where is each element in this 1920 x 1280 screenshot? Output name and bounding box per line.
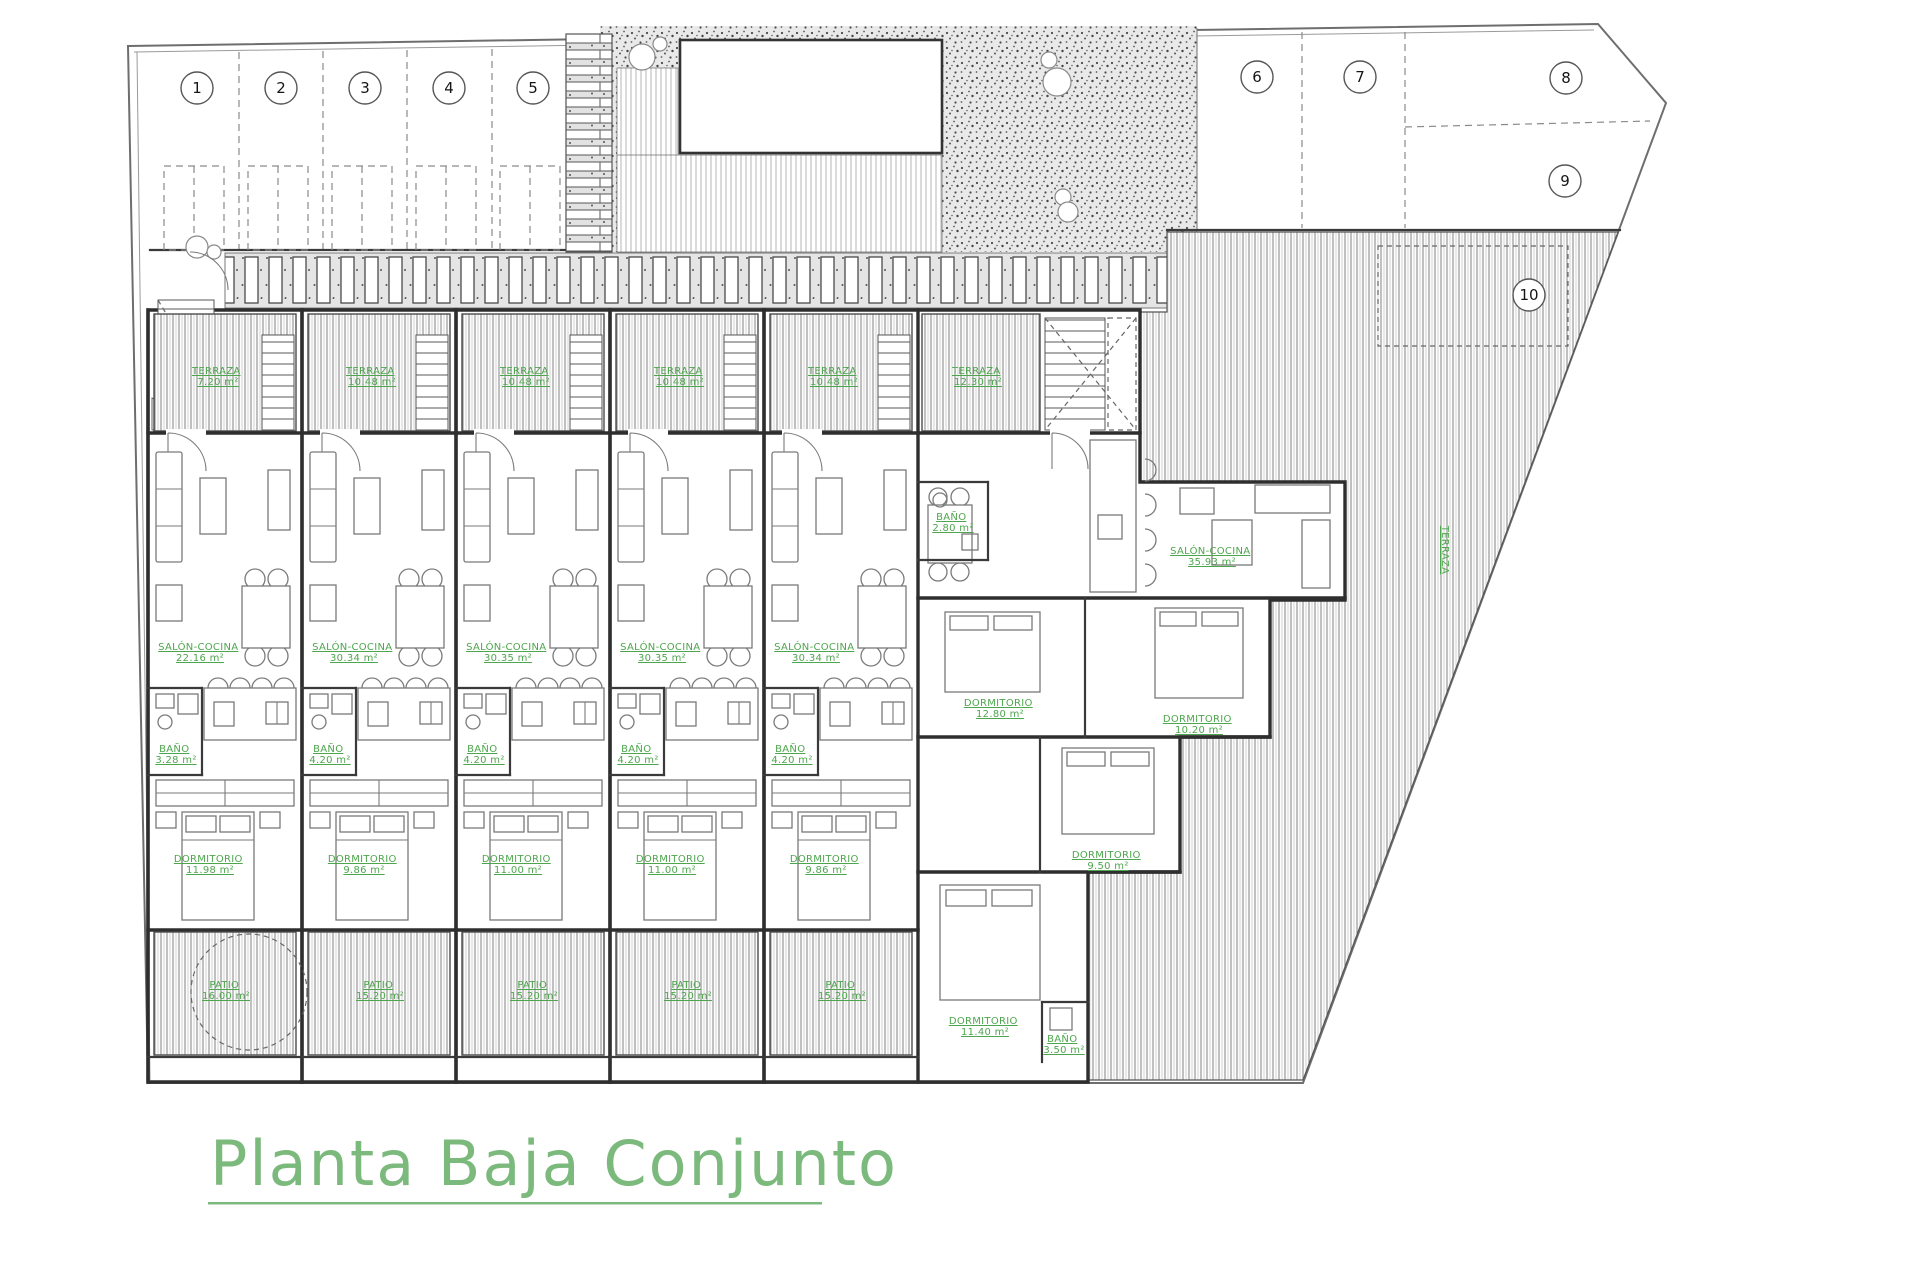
unit-4: TERRAZA 10.48 m² S — [610, 310, 764, 1082]
tv-sideboard — [576, 470, 598, 530]
entry-steps — [566, 34, 612, 252]
corner-bed-4 — [940, 885, 1040, 1000]
armchair — [156, 585, 182, 621]
bathroom: BAÑO 4.20 m² — [302, 688, 356, 775]
spot-number: 10 — [1519, 286, 1538, 304]
toilet — [312, 715, 326, 729]
tv-sideboard — [884, 470, 906, 530]
salon-label: SALÓN-COCINA 22.16 m² — [158, 640, 242, 664]
spot-number: 7 — [1355, 68, 1365, 86]
closet — [464, 780, 602, 806]
armchair — [464, 585, 490, 621]
toilet — [466, 715, 480, 729]
bano-label: BAÑO 4.20 m² — [771, 742, 812, 766]
spot-number: 9 — [1560, 172, 1570, 190]
spot-number: 5 — [528, 79, 538, 97]
shower — [178, 694, 198, 714]
nightstand — [876, 812, 896, 828]
sink — [310, 694, 328, 708]
sofa — [618, 452, 644, 562]
nightstand — [156, 812, 176, 828]
spot-number: 8 — [1561, 69, 1571, 87]
sofa — [310, 452, 336, 562]
parking-spot-8: 8 — [1550, 62, 1582, 94]
terrace-stair — [416, 335, 448, 431]
toilet — [774, 715, 788, 729]
armchair — [618, 585, 644, 621]
terrace-stair — [724, 335, 756, 431]
nightstand — [568, 812, 588, 828]
bano-label: BAÑO 4.20 m² — [309, 742, 350, 766]
corner-door-arc — [1052, 433, 1088, 469]
kitchen-counter — [512, 678, 604, 740]
bano-label: BAÑO 3.28 m² — [155, 742, 196, 766]
title-underline — [208, 1202, 822, 1205]
toilet — [620, 715, 634, 729]
nightstand — [310, 812, 330, 828]
coffee-table — [662, 478, 688, 534]
corner-bano1-label: BAÑO 2.80 m² — [932, 510, 973, 534]
tv-sideboard — [730, 470, 752, 530]
kitchen-counter — [820, 678, 912, 740]
corner-bath-2: BAÑO 3.50 m² — [1042, 1002, 1088, 1062]
corner-stair — [1045, 318, 1105, 430]
unit-3: TERRAZA 10.48 m² S — [456, 310, 610, 1082]
bano-label: BAÑO 4.20 m² — [463, 742, 504, 766]
floor-plan-page: 1 2 3 4 5 6 7 8 9 — [0, 0, 1920, 1280]
parking-spot-5: 5 — [517, 72, 549, 104]
parking-spot-2: 2 — [265, 72, 297, 104]
dining-table — [550, 569, 598, 666]
corner-sofa — [1180, 485, 1330, 588]
corner-dorm3-label: DORMITORIO 9.50 m² — [1072, 850, 1144, 872]
salon-label: SALÓN-COCINA 30.34 m² — [774, 640, 858, 664]
bathroom: BAÑO 4.20 m² — [456, 688, 510, 775]
bathroom: BAÑO 4.20 m² — [610, 688, 664, 775]
sink — [618, 694, 636, 708]
corner-bed-2 — [1155, 608, 1243, 698]
corner-bed-3 — [1062, 748, 1154, 834]
shower — [486, 694, 506, 714]
sofa — [464, 452, 490, 562]
closet — [618, 780, 756, 806]
spot-number: 3 — [360, 79, 370, 97]
dining-table — [242, 569, 290, 666]
terraza-label: TERRAZA 10.48 m² — [807, 366, 860, 388]
tv-sideboard — [422, 470, 444, 530]
armchair — [772, 585, 798, 621]
corner-dorm4-label: DORMITORIO 11.40 m² — [949, 1016, 1021, 1038]
parking-spot-3: 3 — [349, 72, 381, 104]
sink — [464, 694, 482, 708]
bathroom: BAÑO 3.28 m² — [148, 688, 202, 775]
terraza-label: TERRAZA 10.48 m² — [653, 366, 706, 388]
sofa — [156, 452, 182, 562]
salon-label: SALÓN-COCINA 30.34 m² — [312, 640, 396, 664]
coffee-table — [354, 478, 380, 534]
floor-plan-canvas: 1 2 3 4 5 6 7 8 9 — [0, 0, 1920, 1280]
kitchen-counter — [666, 678, 758, 740]
kitchen-counter — [204, 678, 296, 740]
nightstand — [772, 812, 792, 828]
sofa — [772, 452, 798, 562]
shower — [794, 694, 814, 714]
pool-zone — [186, 26, 1197, 259]
nightstand — [722, 812, 742, 828]
unit-1: TERRAZA 7.20 m² SA — [148, 310, 302, 1082]
parking-spot-7: 7 — [1344, 61, 1376, 93]
parking-area-left: 1 2 3 4 5 — [150, 36, 566, 250]
shower — [332, 694, 352, 714]
terraza-label: TERRAZA 10.48 m² — [499, 366, 552, 388]
terrace-stair — [262, 335, 294, 431]
spot-number: 6 — [1252, 68, 1262, 86]
spot-number: 4 — [444, 79, 454, 97]
closet — [772, 780, 910, 806]
coffee-table — [200, 478, 226, 534]
terrace-stair — [570, 335, 602, 431]
corner-bano2-label: BAÑO 3.50 m² — [1043, 1032, 1084, 1056]
spot-number: 2 — [276, 79, 286, 97]
garden-terraza-label: TERRAZA — [1439, 525, 1450, 575]
terrace-stair — [878, 335, 910, 431]
parking-spot-4: 4 — [433, 72, 465, 104]
nightstand — [618, 812, 638, 828]
sink — [156, 694, 174, 708]
parking-spot-6: 6 — [1241, 61, 1273, 93]
parking-area-right: 6 7 8 9 — [1167, 28, 1650, 230]
bathroom: BAÑO 4.20 m² — [764, 688, 818, 775]
nightstand — [464, 812, 484, 828]
page-title: Planta Baja Conjunto — [210, 1127, 898, 1200]
tv-sideboard — [268, 470, 290, 530]
nightstand — [414, 812, 434, 828]
parking-spot-10: 10 — [1513, 279, 1545, 311]
unit-2: TERRAZA 10.48 m² S — [302, 310, 456, 1082]
parking-storage-boxes — [164, 166, 560, 250]
bano-label: BAÑO 4.20 m² — [617, 742, 658, 766]
closet — [310, 780, 448, 806]
salon-label: SALÓN-COCINA 30.35 m² — [620, 640, 704, 664]
shower — [640, 694, 660, 714]
spot-number: 1 — [192, 79, 202, 97]
coffee-table — [508, 478, 534, 534]
parking-spot-1: 1 — [181, 72, 213, 104]
louvered-walkway — [225, 253, 1167, 308]
pool-deck — [617, 155, 942, 252]
corner-dorm2-label: DORMITORIO 10.20 m² — [1163, 714, 1235, 736]
units-row: TERRAZA 7.20 m² SA — [148, 310, 918, 1082]
armchair — [310, 585, 336, 621]
terraza-label: TERRAZA 10.48 m² — [345, 366, 398, 388]
swimming-pool — [680, 40, 942, 153]
dining-table — [704, 569, 752, 666]
drawing-title: Planta Baja Conjunto — [208, 1127, 898, 1205]
salon-label: SALÓN-COCINA 30.35 m² — [466, 640, 550, 664]
toilet — [158, 715, 172, 729]
terraza-label: TERRAZA 7.20 m² — [191, 366, 244, 388]
unit-5: TERRAZA 10.48 m² S — [764, 310, 918, 1082]
sink — [772, 694, 790, 708]
corner-dorm1-label: DORMITORIO 12.80 m² — [964, 698, 1036, 720]
closet — [156, 780, 294, 806]
kitchen-counter — [358, 678, 450, 740]
nightstand — [260, 812, 280, 828]
parking-spot-9: 9 — [1549, 165, 1581, 197]
dining-table — [858, 569, 906, 666]
dining-table — [396, 569, 444, 666]
corner-bed-1 — [945, 612, 1040, 692]
corner-terraza-label: TERRAZA 12.30 m² — [951, 366, 1004, 388]
coffee-table — [816, 478, 842, 534]
